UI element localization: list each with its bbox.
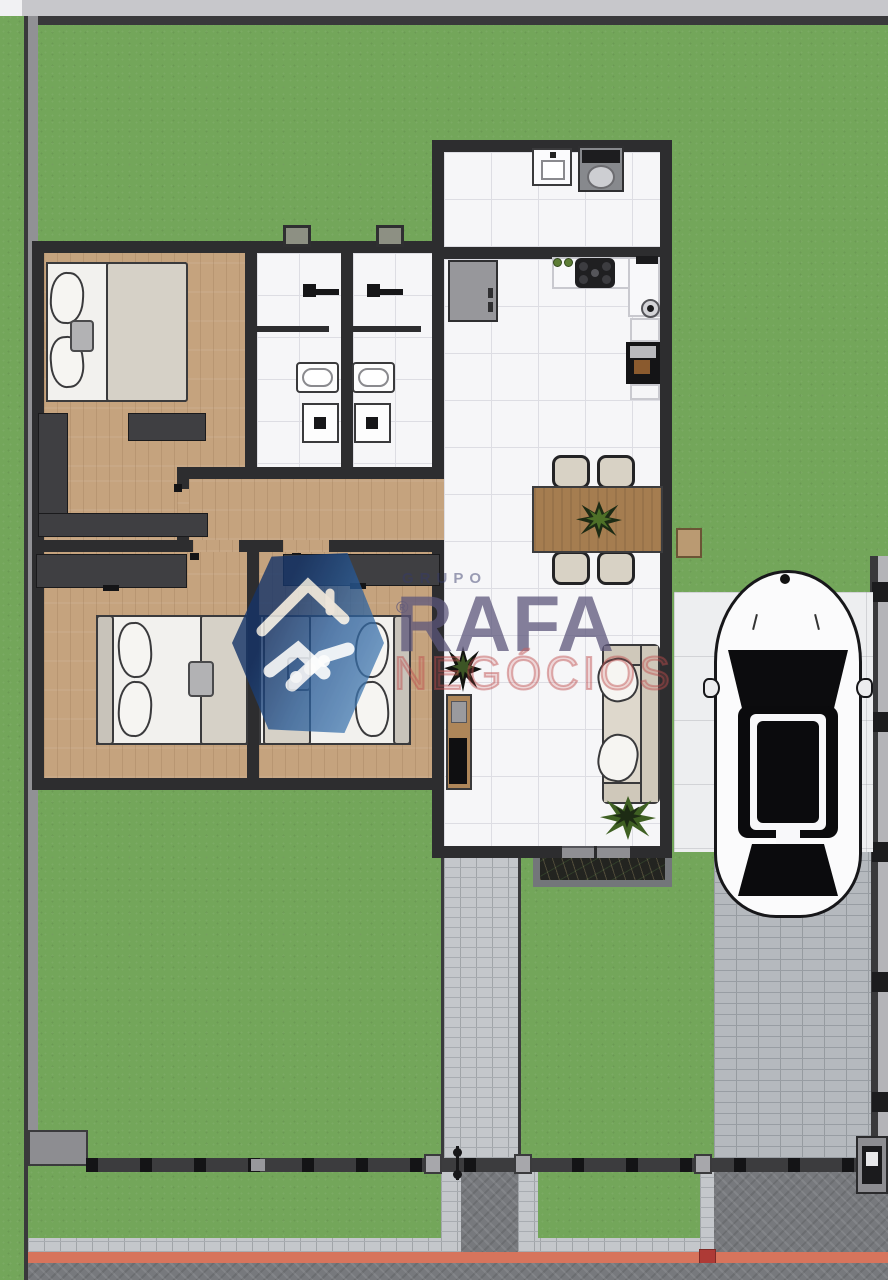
boundary-wall-top xyxy=(24,16,888,25)
tv-stand-decor xyxy=(451,701,467,723)
garden-step xyxy=(676,528,702,558)
washer-panel xyxy=(582,150,620,163)
washing-machine xyxy=(578,146,624,192)
front-fence xyxy=(86,1158,856,1172)
stove-cooktop xyxy=(575,258,615,288)
kitchen-cabinet xyxy=(630,318,660,342)
wardrobe-handle xyxy=(350,583,366,589)
gate-post xyxy=(424,1154,442,1174)
kitchen-wall-fixture xyxy=(636,256,658,264)
meter-box-window xyxy=(866,1152,878,1166)
dining-stool xyxy=(597,455,635,489)
vanity-1 xyxy=(302,403,339,443)
wardrobe-handle xyxy=(103,585,119,591)
shower-partition xyxy=(257,326,329,332)
car-sunroof xyxy=(757,721,819,823)
walkway-entry-path xyxy=(461,1172,518,1252)
floor-plan-render: GRUPO RAFA® NEGÓCIOS xyxy=(0,0,888,1280)
bathtub-1 xyxy=(296,362,339,393)
vanity-2 xyxy=(354,403,391,443)
door-hinge-mark xyxy=(174,484,182,492)
door-hinge-mark xyxy=(190,553,199,560)
bed-tray xyxy=(70,320,94,352)
dresser xyxy=(128,413,206,441)
bedroom-2-door-opening xyxy=(193,540,239,552)
bed-pillow xyxy=(116,621,154,679)
bed-headboard xyxy=(393,615,411,745)
vanity-2-faucet xyxy=(366,417,378,429)
bed-blanket xyxy=(106,262,188,402)
sofa-backrest xyxy=(640,646,658,802)
bed-double xyxy=(46,262,186,402)
tv-stand xyxy=(446,694,472,790)
gate-post xyxy=(514,1154,532,1174)
wardrobe xyxy=(283,554,440,586)
gate-post xyxy=(694,1154,712,1174)
bedroom-3-door-opening xyxy=(283,540,329,552)
street-corner-patch xyxy=(0,0,22,16)
paver-border-column xyxy=(700,1172,714,1238)
kitchen-plant-pot xyxy=(564,258,573,267)
walkway xyxy=(441,852,521,1158)
dining-stool xyxy=(597,551,635,585)
car-mirror-left xyxy=(703,678,720,698)
hallway-floor xyxy=(189,479,444,540)
burner xyxy=(579,275,588,284)
bed-pillow xyxy=(353,621,391,679)
bed-tray xyxy=(287,657,311,691)
gate-hinge xyxy=(453,1170,462,1179)
bed-double xyxy=(96,615,248,745)
fence-post xyxy=(872,1092,888,1112)
bed-tray xyxy=(188,661,214,697)
car-roof-rear xyxy=(776,828,800,844)
gate-hinge xyxy=(453,1148,462,1157)
burner xyxy=(579,262,588,271)
wardrobe-low xyxy=(38,513,208,537)
shower-partition xyxy=(353,326,421,332)
bed-pillow xyxy=(48,271,86,325)
wardrobe xyxy=(36,554,187,588)
car-emblem xyxy=(780,574,790,584)
fence-post xyxy=(872,972,888,992)
laundry-sink-tap xyxy=(550,152,556,158)
bathtub-2 xyxy=(352,362,395,393)
burner xyxy=(602,275,611,284)
fridge-handle xyxy=(488,302,493,312)
car-windshield xyxy=(728,650,848,710)
burner-knob xyxy=(591,269,599,277)
fence-latch-block xyxy=(251,1159,265,1171)
laundry-sink xyxy=(532,148,572,186)
street-band-top xyxy=(0,0,888,16)
kitchen-sink xyxy=(641,299,660,318)
bathroom-2-door-symbol xyxy=(367,284,380,297)
laundry-sink-basin xyxy=(541,160,565,180)
car-rear-window xyxy=(738,844,838,896)
fence-post xyxy=(872,712,888,732)
car-mirror-right xyxy=(856,678,873,698)
fence-post xyxy=(872,842,888,862)
burner xyxy=(602,262,611,271)
walkway-border-left xyxy=(441,1172,461,1252)
walkway-border-right xyxy=(518,1172,538,1252)
bathroom-2-door-bar xyxy=(380,289,403,295)
bathroom-1-door-bar xyxy=(316,289,339,295)
kitchen-sink-drain xyxy=(647,305,654,312)
bathtub-1-basin xyxy=(302,368,333,387)
street-herringbone-bottom xyxy=(28,1263,888,1280)
bathtub-2-basin xyxy=(358,368,389,387)
washer-drum xyxy=(587,165,615,189)
dining-stool xyxy=(552,455,590,489)
front-door-seam xyxy=(594,846,597,858)
bathroom-window-box xyxy=(376,225,404,247)
dining-stool xyxy=(552,551,590,585)
bed-double xyxy=(259,615,411,745)
kitchen-tall-unit xyxy=(626,342,660,384)
kitchen-plant-pot xyxy=(553,258,562,267)
cutting-board xyxy=(634,360,650,374)
kitchen-cabinet xyxy=(630,384,660,400)
bed-headboard xyxy=(96,615,114,745)
tv-icon xyxy=(449,738,467,784)
bathroom-1-door-symbol xyxy=(303,284,316,297)
boundary-wall-left-footing xyxy=(28,1130,88,1166)
bed-pillow xyxy=(353,680,391,738)
bed-pillow xyxy=(116,680,154,738)
bathroom-window-box xyxy=(283,225,311,247)
microwave xyxy=(630,346,656,358)
fridge xyxy=(448,260,498,322)
fridge-handle xyxy=(488,288,493,298)
car-top-view xyxy=(710,566,866,922)
fence-post xyxy=(872,582,888,602)
vanity-1-faucet xyxy=(314,417,326,429)
